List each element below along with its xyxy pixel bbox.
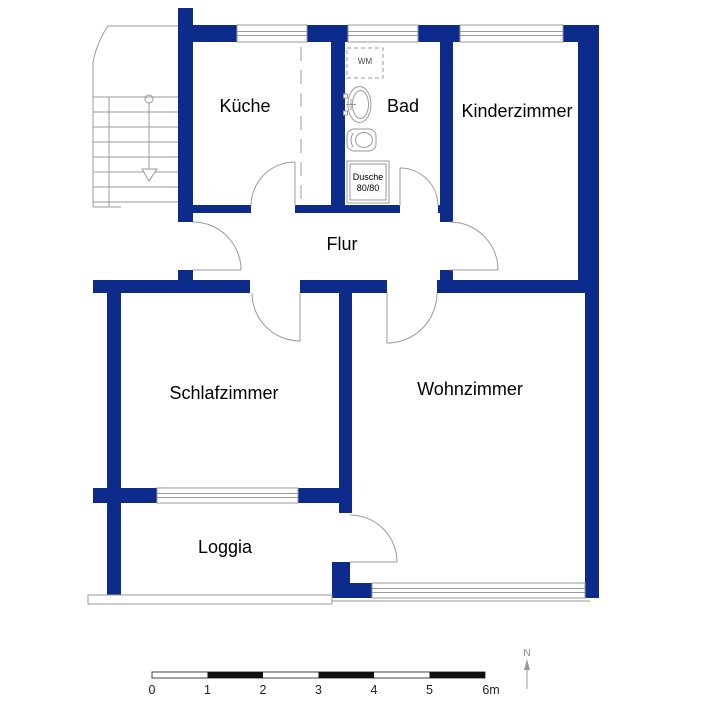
shower-label-line2: 80/80 <box>357 183 380 193</box>
scale-tick-3: 3 <box>315 683 322 697</box>
room-label-wohnzimmer: Wohnzimmer <box>417 379 523 399</box>
wall-segment <box>193 25 237 42</box>
window-kinderzimmer <box>460 25 563 42</box>
wall-segment <box>350 583 372 598</box>
door-bad <box>400 168 438 206</box>
room-label-kueche: Küche <box>219 96 270 116</box>
north-arrowhead-icon <box>524 659 530 670</box>
wall-segment <box>438 205 453 213</box>
wall-segment <box>418 25 460 42</box>
scale-tick-6m: 6m <box>482 683 499 697</box>
north-label: N <box>523 648 530 659</box>
wall-segment <box>93 488 157 503</box>
window-schlafzimmer-loggia <box>157 488 298 503</box>
parapet-outline <box>88 595 332 604</box>
floorplan-drawing: WM Dusche 80/80 Küche Bad Kinderzimmer F… <box>0 0 709 709</box>
door-entrance <box>193 222 241 270</box>
window-wohnzimmer <box>372 583 585 598</box>
sink <box>344 87 372 123</box>
stair-direction-start-circle <box>145 95 153 103</box>
wall-segment <box>93 280 250 293</box>
room-label-kinderzimmer: Kinderzimmer <box>461 101 572 121</box>
door-wohnzimmer <box>387 293 437 343</box>
wall-segment <box>307 25 348 42</box>
scale-bar-segment <box>208 672 264 678</box>
floorplan-canvas: WM Dusche 80/80 Küche Bad Kinderzimmer F… <box>0 0 709 709</box>
washing-machine-label: WM <box>358 57 373 66</box>
wall-segment <box>578 25 599 293</box>
wall-segment <box>298 488 352 503</box>
wall-segment <box>178 205 251 213</box>
wall-segment <box>331 42 345 212</box>
toilet <box>347 129 376 151</box>
door-schlafzimmer <box>252 293 300 341</box>
window-kueche <box>237 25 307 42</box>
stair-direction-arrowhead-icon <box>142 169 157 181</box>
door-swing-arc <box>400 168 438 206</box>
wall-segment <box>178 270 193 280</box>
room-label-schlafzimmer: Schlafzimmer <box>169 383 278 403</box>
scale-tick-5: 5 <box>426 683 433 697</box>
wall-segment <box>585 293 599 598</box>
door-swing-arc <box>252 293 300 341</box>
door-kueche <box>251 162 295 206</box>
wall-segment <box>332 562 350 598</box>
door-swing-arc <box>193 222 241 270</box>
window-bad <box>348 25 418 42</box>
door-loggia <box>350 515 397 562</box>
wall-segment <box>300 280 387 293</box>
room-label-flur: Flur <box>327 234 358 254</box>
north-arrow-icon: N <box>523 648 530 689</box>
shower: Dusche 80/80 <box>347 161 389 203</box>
scale-tick-4: 4 <box>371 683 378 697</box>
room-label-bad: Bad <box>387 96 419 116</box>
scale-tick-2: 2 <box>260 683 267 697</box>
scale-bar-segment <box>430 672 486 678</box>
scale-bar-segment <box>319 672 375 678</box>
shower-label-line1: Dusche <box>353 172 384 182</box>
wall-segment <box>437 280 598 293</box>
wall-segment <box>295 205 400 213</box>
door-swing-arc <box>251 162 295 206</box>
wall-segment <box>440 42 453 222</box>
door-swing-arc <box>387 293 437 343</box>
wall-segment <box>178 8 193 222</box>
stairwell-break-curve <box>93 26 108 62</box>
washing-machine: WM <box>347 48 383 78</box>
door-kinderzimmer <box>450 222 498 270</box>
wall-segment <box>339 293 352 513</box>
door-swing-arc <box>450 222 498 270</box>
bathroom-fixtures: WM Dusche 80/80 <box>344 48 390 203</box>
scale-bar: 0 1 2 3 4 5 6m <box>149 672 500 697</box>
door-swing-arc <box>350 515 397 562</box>
stairwell <box>93 26 178 207</box>
wall-segment <box>107 293 121 595</box>
scale-tick-1: 1 <box>204 683 211 697</box>
scale-tick-0: 0 <box>149 683 156 697</box>
room-label-loggia: Loggia <box>198 537 253 557</box>
